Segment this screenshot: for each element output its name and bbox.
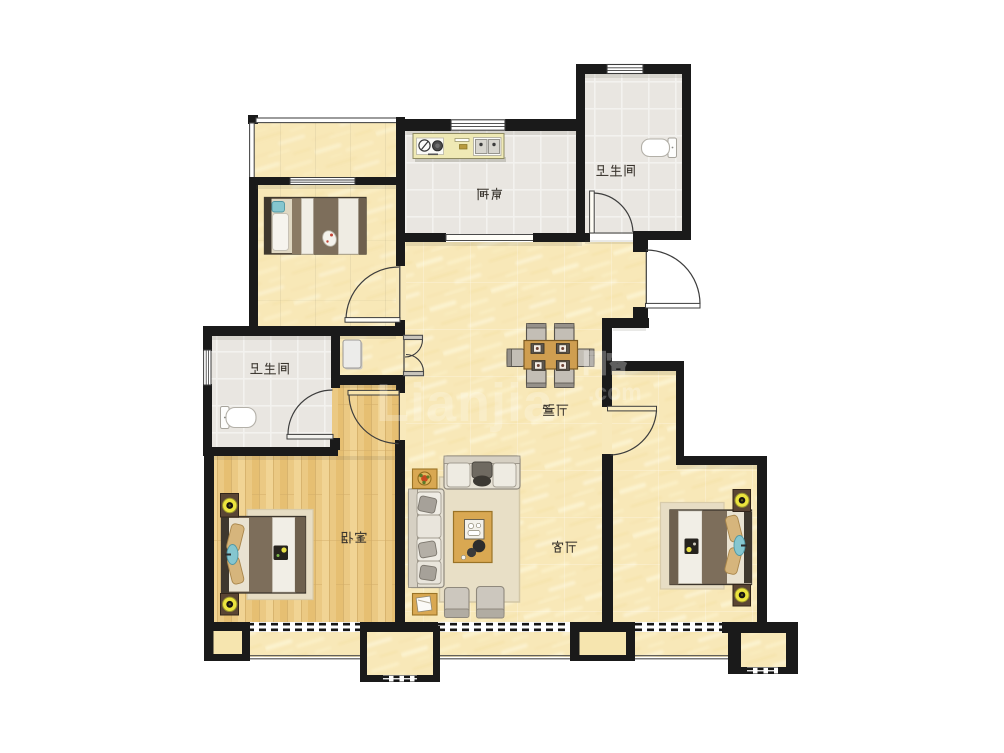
- svg-text:Lianjia: Lianjia: [376, 373, 554, 433]
- svg-text:.com: .com: [588, 379, 642, 405]
